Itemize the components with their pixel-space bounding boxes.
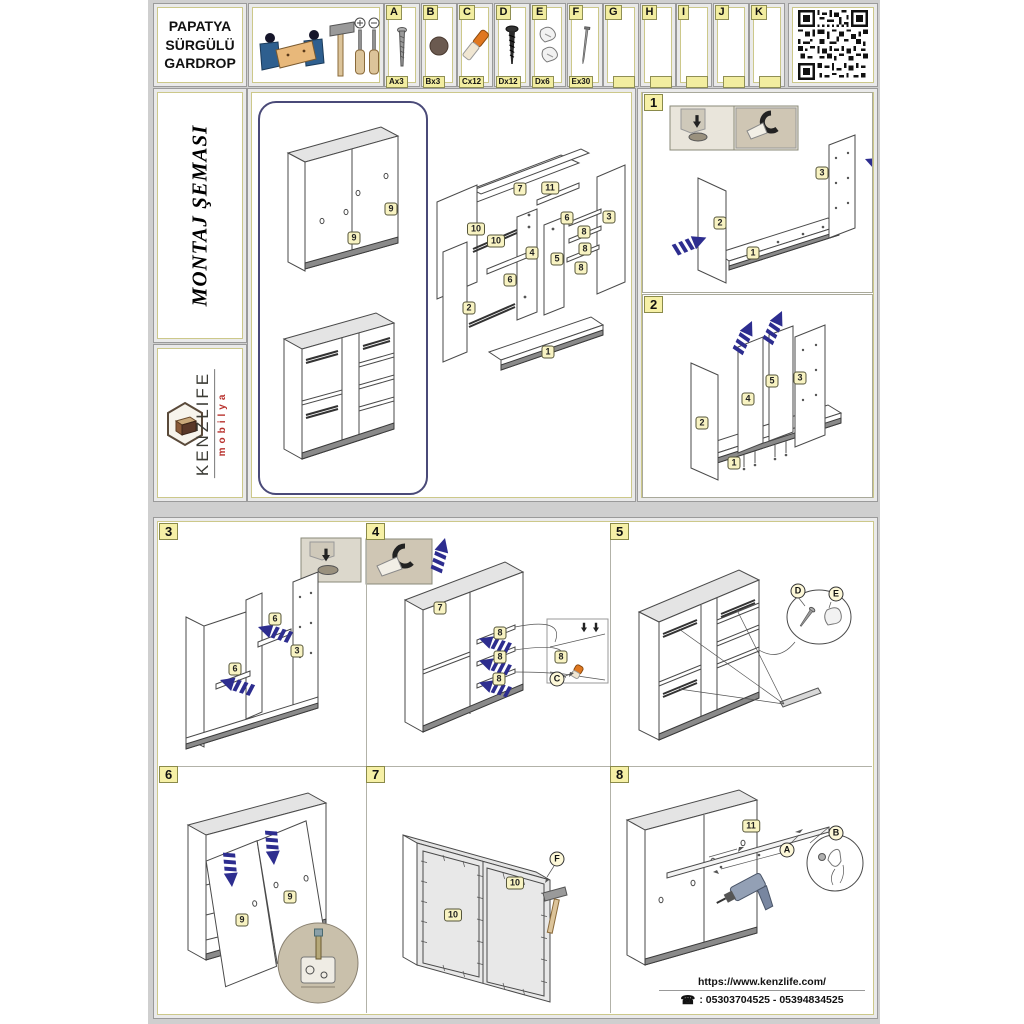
step-4-illustration bbox=[365, 522, 609, 765]
part-tag: 10 bbox=[487, 235, 505, 248]
step-4-number: 4 bbox=[366, 523, 385, 540]
orange-dowel-icon bbox=[460, 20, 490, 76]
hardware-letter-e: E bbox=[532, 5, 547, 20]
part-tag: 8 bbox=[493, 627, 506, 640]
hardware-letter-d: D bbox=[496, 5, 512, 20]
step-5-illustration bbox=[609, 522, 871, 765]
hardware-box-i: I bbox=[676, 3, 712, 87]
part-tag: 1 bbox=[541, 346, 554, 359]
step-2-box: 2 2 4 5 3 1 bbox=[642, 294, 873, 498]
part-tag: 8 bbox=[554, 651, 567, 664]
brand-logo-box: KENZLIFE mobilya bbox=[153, 344, 247, 502]
part-tag: 8 bbox=[492, 673, 505, 686]
hardware-letter-f: F bbox=[569, 5, 584, 20]
part-tag: 4 bbox=[741, 393, 754, 406]
part-tag: 3 bbox=[602, 211, 615, 224]
title-line-3: GARDROP bbox=[164, 54, 236, 73]
part-tag: 11 bbox=[541, 182, 559, 195]
phone-icon: ☎ bbox=[680, 993, 695, 1007]
brand-subtitle: mobilya bbox=[218, 368, 229, 477]
open-wardrobe-illustration bbox=[264, 297, 419, 482]
long-screw-icon bbox=[387, 20, 417, 76]
part-tag: 10 bbox=[444, 909, 462, 922]
part-tag: 6 bbox=[228, 663, 241, 676]
title-line-2: SÜRGÜLÜ bbox=[165, 36, 234, 55]
nail-icon bbox=[570, 20, 600, 76]
step-6-number: 6 bbox=[159, 766, 178, 783]
part-tag: 3 bbox=[290, 645, 303, 658]
hardware-box-k: K bbox=[749, 3, 785, 87]
hardware-box-b: B Bx3 bbox=[421, 3, 457, 87]
hardware-ref-letter-d: D bbox=[791, 584, 806, 599]
steps-1-2-panel: 1 2 1 3 2 bbox=[637, 88, 878, 502]
hardware-box-g: G bbox=[603, 3, 639, 87]
step-3-number: 3 bbox=[159, 523, 178, 540]
part-tag: 6 bbox=[560, 212, 573, 225]
hardware-box-c: C Cx12 bbox=[457, 3, 493, 87]
step-8-number: 8 bbox=[610, 766, 629, 783]
part-tag: 8 bbox=[574, 262, 587, 275]
hardware-count-g bbox=[613, 76, 635, 88]
part-tag: 2 bbox=[713, 217, 726, 230]
part-tag: 8 bbox=[578, 243, 591, 256]
part-tag: 3 bbox=[793, 372, 806, 385]
hardware-count-a: Ax3 bbox=[386, 76, 408, 88]
hardware-box-d: D Dx12 bbox=[494, 3, 530, 87]
part-tag: 2 bbox=[695, 417, 708, 430]
schema-title-box: MONTAJ ŞEMASI bbox=[153, 88, 247, 343]
hardware-count-f: Ex30 bbox=[569, 76, 594, 88]
part-tag: 3 bbox=[815, 167, 828, 180]
plastic-clip-icon bbox=[533, 20, 563, 76]
part-tag: 9 bbox=[283, 891, 296, 904]
product-title: PAPATYA SÜRGÜLÜ GARDROP bbox=[160, 10, 240, 80]
part-tag: 9 bbox=[384, 203, 397, 216]
assembly-tools-illustration bbox=[252, 8, 380, 82]
step-8-cell: 8 11 A B https://www.kenzli bbox=[609, 765, 871, 1012]
part-tag: 2 bbox=[462, 302, 475, 315]
part-tag: 7 bbox=[513, 183, 526, 196]
step-5-cell: 5 D E bbox=[609, 522, 871, 765]
part-tag: 11 bbox=[742, 820, 760, 833]
step-6-illustration bbox=[158, 765, 365, 1012]
hardware-letter-j: J bbox=[715, 5, 729, 20]
hardware-letter-i: I bbox=[678, 5, 689, 20]
step-2-number: 2 bbox=[644, 296, 663, 313]
hardware-ref-letter-f: F bbox=[550, 852, 565, 867]
hardware-ref-letter-e: E bbox=[829, 587, 844, 602]
hardware-letter-c: C bbox=[459, 5, 475, 20]
hardware-letter-k: K bbox=[751, 5, 767, 20]
qr-code bbox=[798, 10, 868, 80]
hardware-count-i bbox=[686, 76, 708, 88]
phone-numbers: : 05303704525 - 05394834525 bbox=[699, 994, 843, 1006]
part-tag: 1 bbox=[746, 247, 759, 260]
hardware-count-j bbox=[723, 76, 745, 88]
hardware-letter-h: H bbox=[642, 5, 658, 20]
grid-divider bbox=[159, 766, 872, 767]
step-3-cell: 3 6 3 6 bbox=[158, 522, 365, 765]
step-7-number: 7 bbox=[366, 766, 385, 783]
step-2-illustration bbox=[643, 295, 872, 497]
part-tag: 5 bbox=[550, 253, 563, 266]
part-tag: 7 bbox=[433, 602, 446, 615]
hardware-box-j: J bbox=[713, 3, 749, 87]
part-tag: 9 bbox=[235, 914, 248, 927]
step-1-box: 1 2 1 3 bbox=[642, 92, 873, 293]
step-3-illustration bbox=[158, 522, 365, 765]
hardware-box-e: E Dx6 bbox=[530, 3, 566, 87]
part-tag: 8 bbox=[493, 651, 506, 664]
step-8-illustration bbox=[609, 765, 871, 1012]
hardware-box-h: H bbox=[640, 3, 676, 87]
hardware-count-k bbox=[759, 76, 781, 88]
step-7-cell: 7 10 10 F bbox=[365, 765, 609, 1012]
part-tag: 10 bbox=[467, 223, 485, 236]
part-tag: 5 bbox=[765, 375, 778, 388]
part-tag: 6 bbox=[268, 613, 281, 626]
schema-title: MONTAJ ŞEMASI bbox=[188, 125, 213, 307]
hardware-ref-letter-a: A bbox=[780, 843, 795, 858]
part-tag: 8 bbox=[577, 226, 590, 239]
part-tag: 9 bbox=[347, 232, 360, 245]
cam-cap-icon bbox=[424, 20, 454, 76]
hardware-count-d: Dx12 bbox=[496, 76, 521, 88]
title-line-1: PAPATYA bbox=[169, 17, 232, 36]
hardware-count-h bbox=[650, 76, 672, 88]
website-url: https://www.kenzlife.com/ bbox=[659, 976, 865, 991]
closed-wardrobe-illustration bbox=[266, 113, 416, 288]
hardware-box-f: F Ex30 bbox=[567, 3, 603, 87]
part-tag: 1 bbox=[727, 457, 740, 470]
step-7-illustration bbox=[365, 765, 609, 1012]
hardware-ref-letter-c: C bbox=[550, 672, 565, 687]
step-1-number: 1 bbox=[644, 94, 663, 111]
hardware-count-b: Bx3 bbox=[423, 76, 445, 88]
hardware-letter-g: G bbox=[605, 5, 622, 20]
hardware-letter-b: B bbox=[423, 5, 439, 20]
qr-code-box bbox=[788, 3, 878, 87]
hardware-letter-a: A bbox=[386, 5, 402, 20]
step-5-number: 5 bbox=[610, 523, 629, 540]
part-tag: 4 bbox=[525, 247, 538, 260]
hardware-count-e: Dx6 bbox=[532, 76, 554, 88]
product-title-box: PAPATYA SÜRGÜLÜ GARDROP bbox=[153, 3, 247, 87]
part-tag: 10 bbox=[506, 877, 524, 890]
hardware-ref-letter-b: B bbox=[829, 826, 844, 841]
part-tag: 6 bbox=[503, 274, 516, 287]
step-1-illustration bbox=[643, 93, 872, 292]
tools-box bbox=[248, 3, 384, 87]
step-6-cell: 6 9 9 bbox=[158, 765, 365, 1012]
contact-footer: https://www.kenzlife.com/ ☎ : 0530370452… bbox=[659, 976, 865, 1007]
black-screw-icon bbox=[497, 20, 527, 76]
brand-name: KENZLIFE bbox=[194, 368, 216, 477]
exploded-view-illustration bbox=[429, 97, 634, 492]
step-4-cell: 4 7 8 8 8 8 C bbox=[365, 522, 609, 765]
hardware-box-a: A Ax3 bbox=[384, 3, 420, 87]
overview-panel: 9 9 7 11 10 1 bbox=[247, 88, 636, 502]
hardware-count-c: Cx12 bbox=[459, 76, 484, 88]
